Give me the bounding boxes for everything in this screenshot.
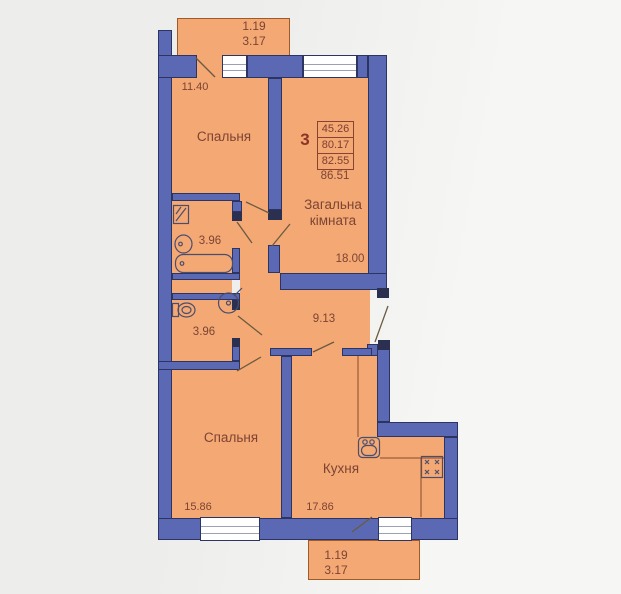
wc-sink-icon (219, 293, 239, 313)
bathroom-sink-icon (179, 242, 183, 246)
balcony-dim: 3.17 (296, 563, 376, 578)
living-room-area: 18.00 (330, 253, 370, 265)
washing-machine-icon (176, 207, 186, 221)
door-leaf-balcony-bottom (352, 517, 372, 532)
stove-burner-icon (435, 460, 439, 464)
balcony-dim: 1.19 (296, 548, 376, 563)
living-room-label-line: Загальна (293, 197, 373, 213)
kitchen-sink-icon (359, 438, 380, 458)
balcony-top-dims: 1.19 3.17 (214, 19, 294, 49)
rooms-count: 3 (295, 130, 315, 150)
toilet-icon (182, 307, 191, 314)
kitchen-sink-icon (370, 440, 374, 444)
door-leaf-bedroom2 (237, 357, 261, 371)
balcony-dim: 1.19 (214, 19, 294, 34)
area-row: 45.26 (318, 122, 353, 137)
bedroom1-label: Спальня (186, 129, 262, 144)
area-row: 82.55 (318, 153, 353, 169)
bedroom1-area: 11.40 (175, 81, 215, 93)
kitchen-sink-icon (362, 446, 377, 456)
door-leaf-kitchen (313, 342, 334, 352)
stove-burner-icon (425, 460, 429, 464)
balcony-bottom-dims: 1.19 3.17 (296, 548, 376, 578)
area-row: 80.17 (318, 137, 353, 153)
kitchen-area: 17.86 (300, 501, 340, 513)
living-room-label-line: кімната (293, 213, 373, 229)
total-area: 86.51 (315, 170, 355, 182)
bedroom2-label: Спальня (193, 430, 269, 445)
door-leaf-balcony-top (196, 58, 215, 77)
bathroom-area: 3.96 (192, 235, 228, 247)
door-leaf-wc (238, 316, 262, 335)
hall-area: 9.13 (304, 313, 344, 325)
stove-burner-icon (425, 470, 429, 474)
door-leaf-entrance (375, 306, 388, 342)
kitchen-sink-icon (363, 440, 367, 444)
wc-area: 3.96 (186, 326, 222, 338)
bathtub-icon (180, 262, 184, 266)
stove-burner-icon (435, 470, 439, 474)
bathroom-sink-icon (175, 235, 192, 253)
door-leaf-bedroom1 (246, 202, 269, 213)
door-leaf-bathroom (237, 222, 252, 243)
living-room-label: Загальна кімната (293, 197, 373, 229)
stove-icon (422, 457, 443, 478)
balcony-dim: 3.17 (214, 34, 294, 49)
wc-sink-icon (234, 288, 242, 296)
bedroom2-area: 15.86 (178, 501, 218, 513)
kitchen-label: Кухня (310, 461, 372, 476)
wc-sink-icon (227, 301, 231, 305)
door-leaf-living-room (272, 224, 290, 246)
area-info-box: 45.26 80.17 82.55 (317, 121, 354, 170)
floor-plan: 3 45.26 80.17 82.55 86.51 1.19 3.17 11.4… (0, 0, 621, 594)
toilet-icon (178, 303, 195, 317)
